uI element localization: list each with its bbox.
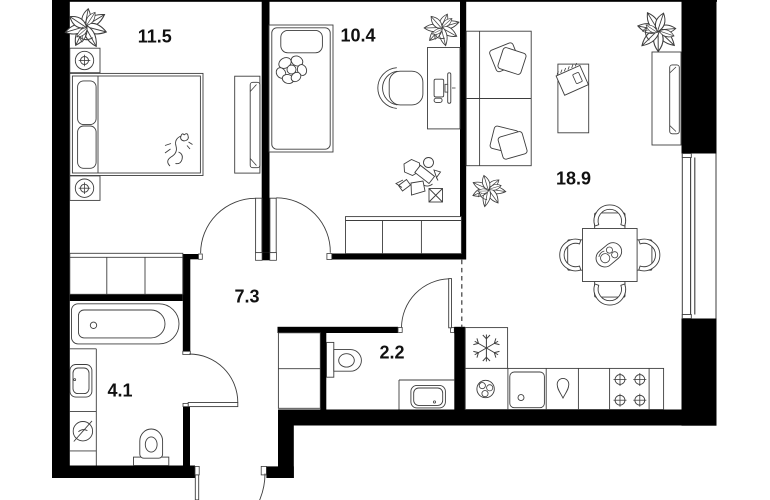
svg-text:18.9: 18.9 [556,169,591,189]
svg-text:11.5: 11.5 [138,27,172,47]
svg-text:10.4: 10.4 [340,26,375,46]
svg-text:4.1: 4.1 [107,381,132,401]
svg-text:7.3: 7.3 [234,287,259,307]
svg-text:2.2: 2.2 [379,343,404,363]
